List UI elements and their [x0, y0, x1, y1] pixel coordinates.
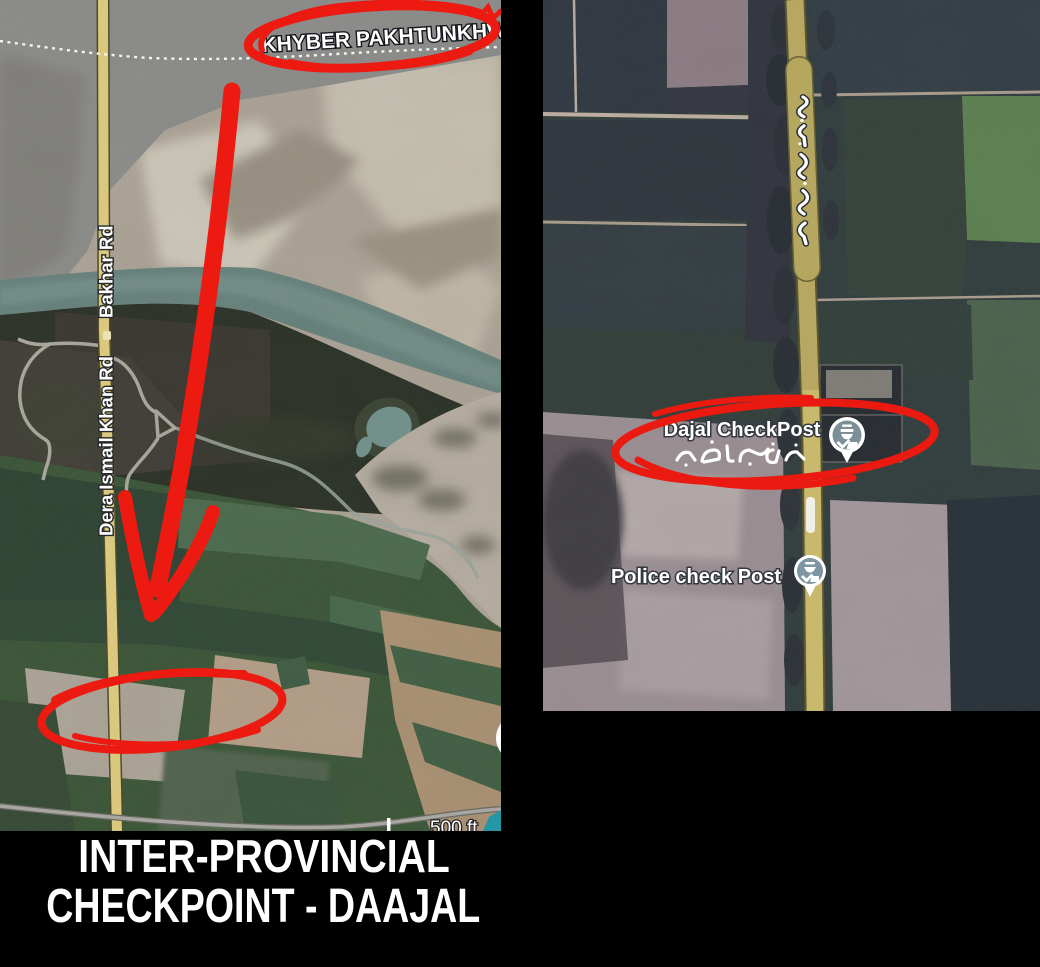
svg-text:Dera Ismail Khan Rd: Dera Ismail Khan Rd [96, 356, 117, 536]
svg-text:Dajal CheckPost: Dajal CheckPost [664, 419, 821, 441]
svg-text:Police check Post: Police check Post [611, 566, 781, 588]
svg-text:Bakhar Rd: Bakhar Rd [96, 225, 117, 318]
